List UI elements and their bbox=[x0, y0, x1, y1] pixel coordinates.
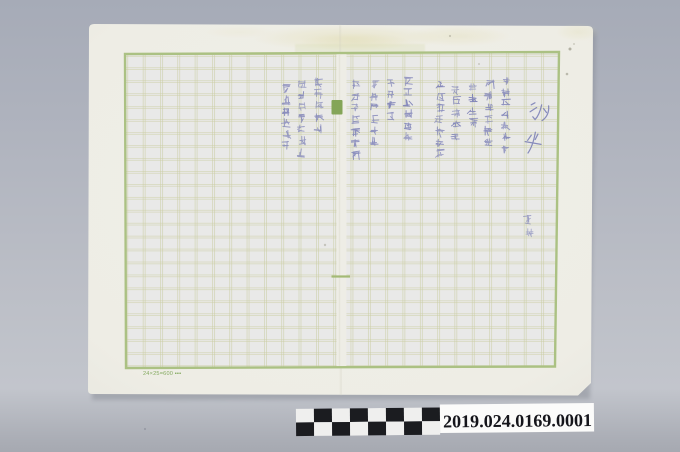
svg-text:24×25=600 ▪▪▪: 24×25=600 ▪▪▪ bbox=[143, 371, 181, 377]
svg-text:2019.024.0169.0001: 2019.024.0169.0001 bbox=[443, 410, 592, 431]
